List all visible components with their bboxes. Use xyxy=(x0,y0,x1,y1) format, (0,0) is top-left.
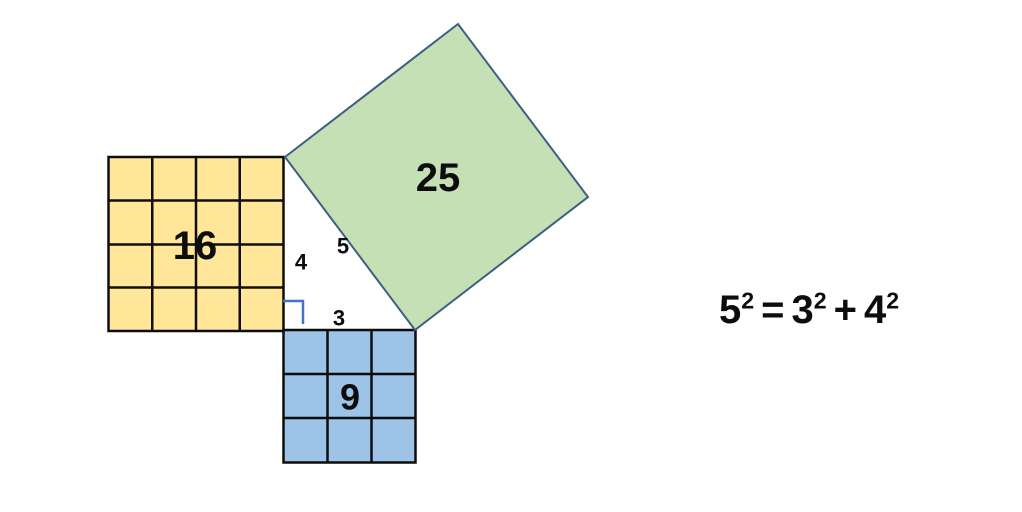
equation-term1-exponent: 2 xyxy=(741,288,754,314)
equation-term2-exponent: 2 xyxy=(814,288,827,314)
right-angle-marker-icon xyxy=(283,301,303,324)
equation-term2-base: 3 xyxy=(792,288,814,332)
side-label-horizontal-leg: 3 xyxy=(333,306,345,331)
equation-term3-base: 4 xyxy=(864,288,886,332)
pythagorean-equation: 52=32+42 xyxy=(719,288,899,332)
side-label-hypotenuse: 5 xyxy=(337,234,349,259)
square-16-label: 16 xyxy=(173,224,218,268)
square-16: 16 xyxy=(109,157,284,331)
square-9-label: 9 xyxy=(340,377,360,418)
square-25: 25 xyxy=(285,24,588,330)
pythagorean-diagram: 16 9 25 4 5 3 xyxy=(0,0,1022,512)
equation-plus-sign: + xyxy=(834,288,857,332)
equation-equals-sign: = xyxy=(761,288,784,332)
square-25-label: 25 xyxy=(416,156,461,200)
side-label-vertical-leg: 4 xyxy=(295,250,308,275)
equation-term1-base: 5 xyxy=(719,288,741,332)
equation-term3-exponent: 2 xyxy=(886,288,899,314)
square-9: 9 xyxy=(284,330,416,463)
slide-canvas: 16 9 25 4 5 3 52=32+42 xyxy=(0,0,1022,512)
